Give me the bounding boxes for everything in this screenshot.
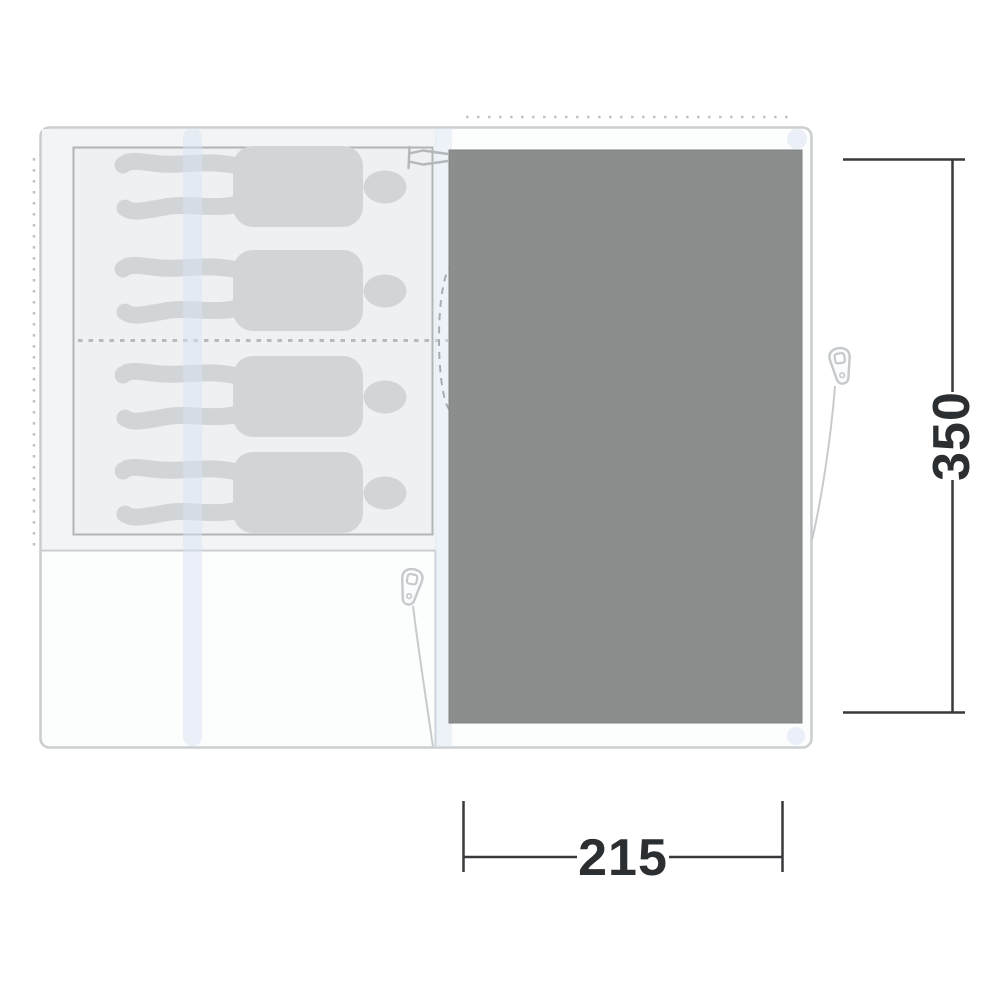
width-dimension-label: 215 (553, 830, 693, 886)
pole-corner-bottom-right (787, 727, 805, 745)
pole-corner-top-right (787, 129, 807, 149)
pole-sleeve-left (183, 128, 202, 746)
living-area-groundsheet (449, 150, 802, 723)
zipper-pull-icon-right (828, 347, 853, 385)
floorplan-drawing (0, 0, 1000, 1000)
tent-floorplan: 350 215 (0, 0, 1000, 1000)
guyline-right (812, 386, 835, 540)
depth-dimension-label: 350 (924, 366, 980, 506)
